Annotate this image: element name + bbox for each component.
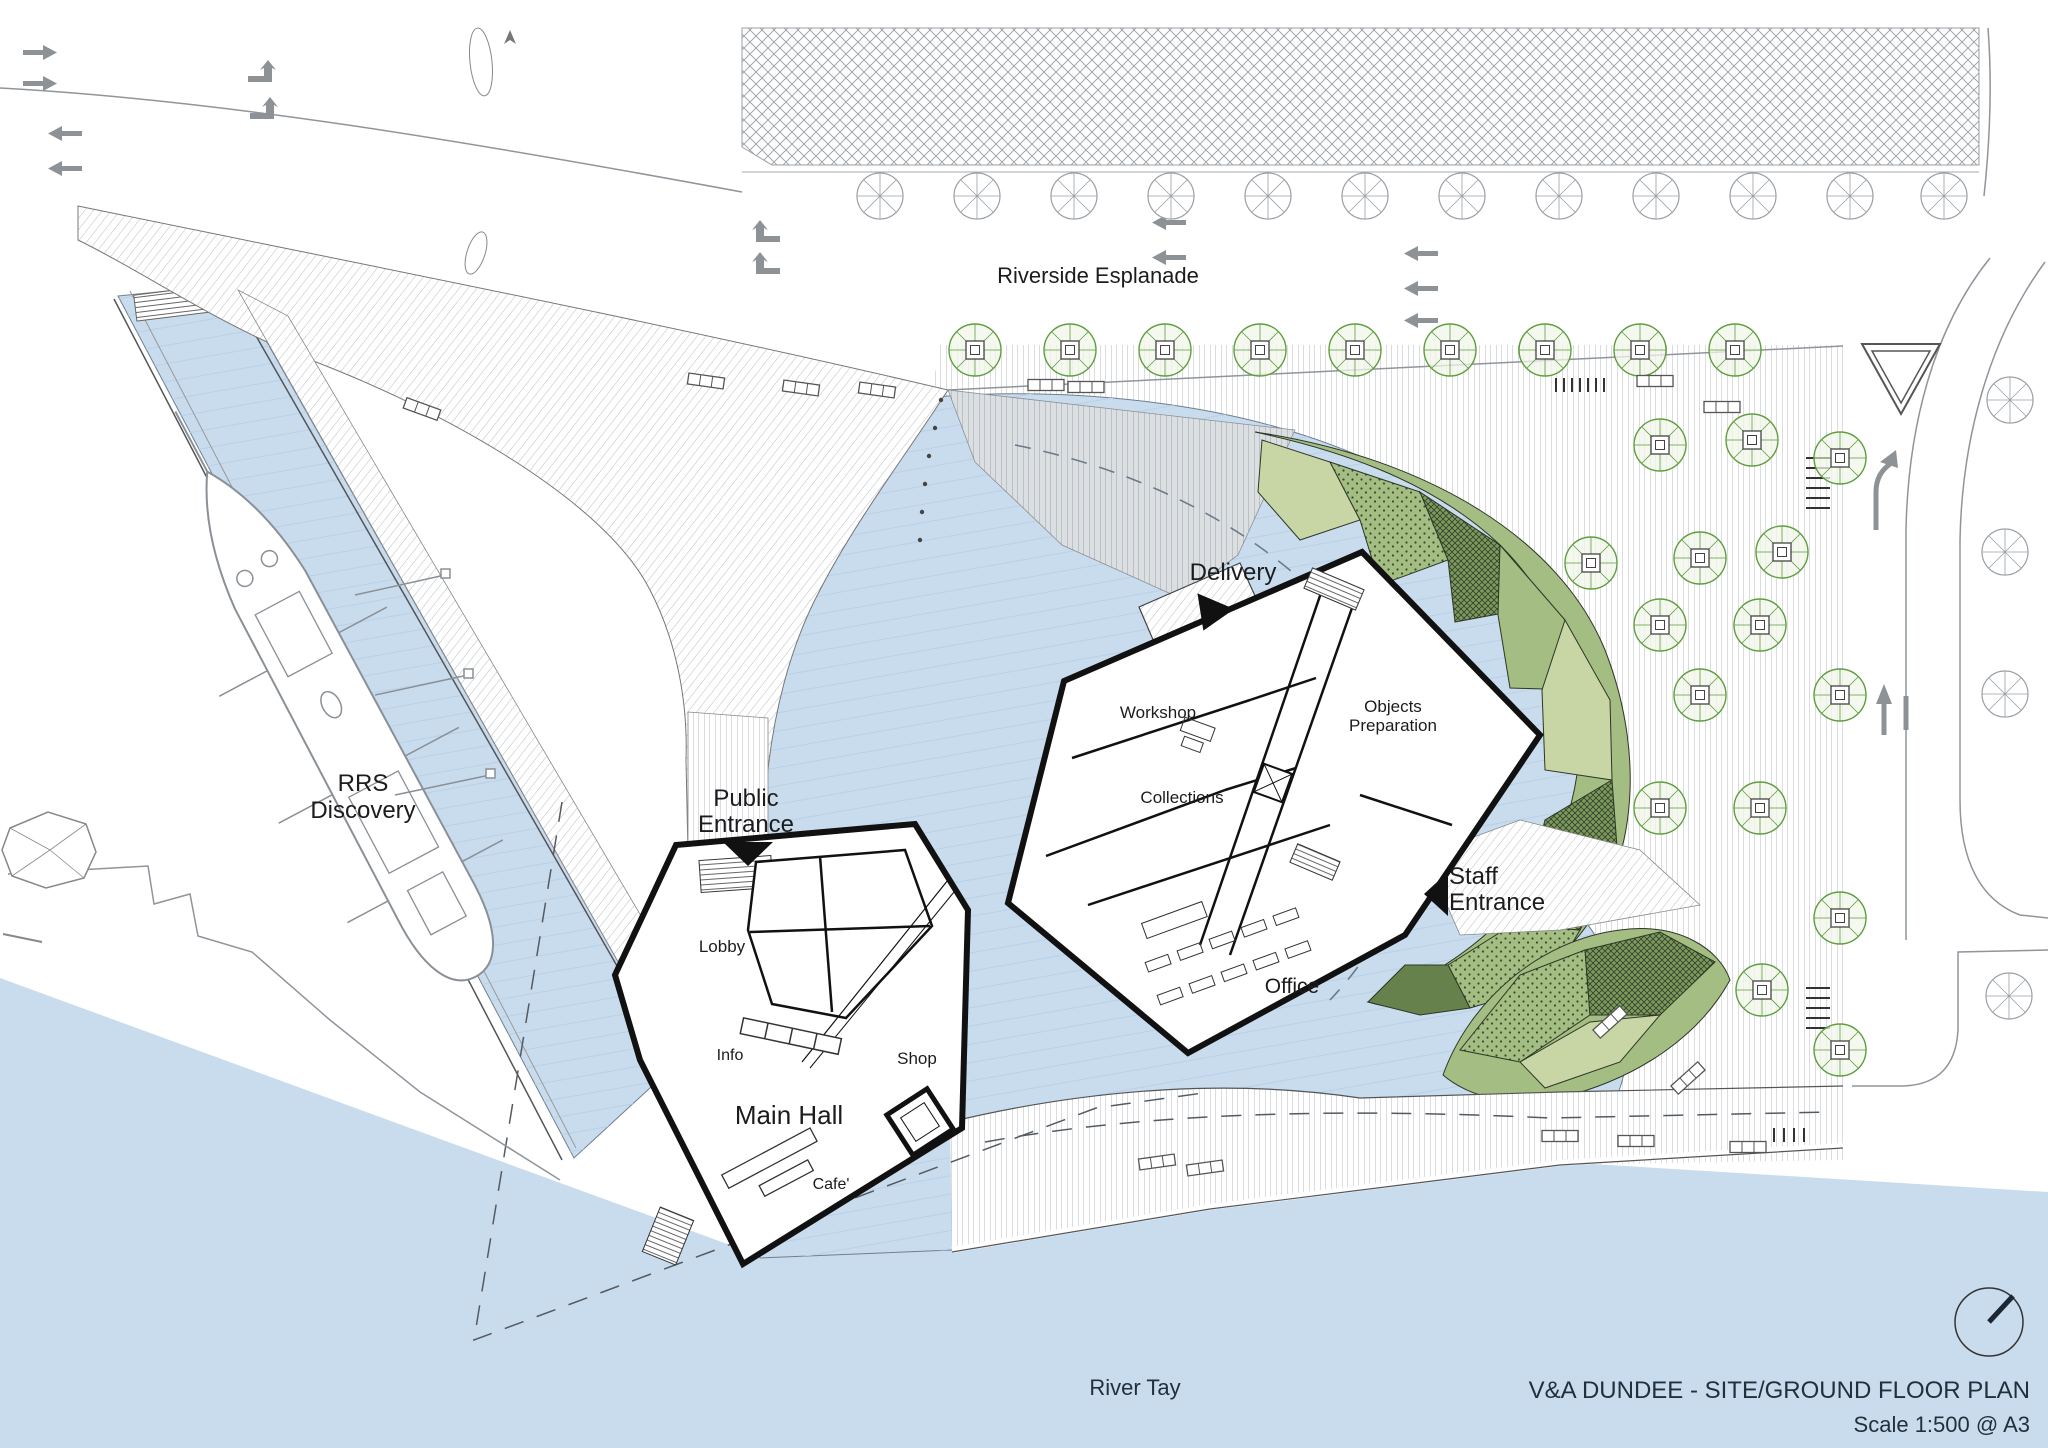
shop-label: Shop	[897, 1049, 937, 1068]
bench-icon	[1704, 402, 1740, 413]
objects-preparation-label-line2: Preparation	[1349, 716, 1437, 735]
tree-gray-icon	[954, 173, 1000, 219]
tree-icon	[1814, 892, 1866, 944]
tree-icon	[1709, 324, 1761, 376]
tree-gray-icon	[1245, 173, 1291, 219]
tree-icon	[949, 324, 1001, 376]
tree-gray-icon	[1827, 173, 1873, 219]
tree-gray-icon	[1051, 173, 1097, 219]
tree-gray-icon	[1921, 173, 1967, 219]
tree-icon	[1814, 432, 1866, 484]
tree-icon	[1139, 324, 1191, 376]
riverside-esplanade-label: Riverside Esplanade	[997, 263, 1199, 288]
tree-icon	[1756, 526, 1808, 578]
tree-icon	[1519, 324, 1571, 376]
collections-label: Collections	[1140, 788, 1223, 807]
tree-icon	[1565, 537, 1617, 589]
river-tay-label: River Tay	[1089, 1375, 1180, 1400]
tree-gray-icon	[1439, 173, 1485, 219]
tree-gray-icon	[1148, 173, 1194, 219]
tree-icon	[1634, 782, 1686, 834]
main-hall-label: Main Hall	[735, 1100, 843, 1130]
tree-gray-icon	[1633, 173, 1679, 219]
bench-icon	[1542, 1131, 1578, 1142]
tree-icon	[1234, 324, 1286, 376]
tree-gray-icon	[857, 173, 903, 219]
bench-icon	[1028, 380, 1064, 391]
site-plan-drawing: Riverside Esplanade RRS Discovery Public…	[0, 0, 2048, 1448]
drawing-scale: Scale 1:500 @ A3	[1854, 1412, 2030, 1437]
tree-icon	[1736, 964, 1788, 1016]
bench-icon	[1618, 1136, 1654, 1147]
railway-block	[742, 28, 1979, 172]
tree-row-road	[949, 324, 1761, 376]
tree-gray-icon	[1986, 973, 2032, 1019]
tree-icon	[1734, 599, 1786, 651]
tree-icon	[1329, 324, 1381, 376]
lobby-label: Lobby	[699, 937, 746, 956]
tree-icon	[1734, 782, 1786, 834]
tree-gray-icon	[1342, 173, 1388, 219]
public-entrance-label-line2: Entrance	[698, 811, 794, 838]
tree-icon	[1614, 324, 1666, 376]
tree-icon	[1674, 669, 1726, 721]
tree-gray-icon	[1536, 173, 1582, 219]
drawing-title: V&A DUNDEE - SITE/GROUND FLOOR PLAN	[1529, 1377, 2030, 1404]
rrs-discovery-label-line2: Discovery	[310, 797, 415, 824]
tree-gray-icon	[1982, 671, 2028, 717]
office-label: Office	[1265, 975, 1319, 998]
bench-icon	[1637, 376, 1673, 387]
staff-entrance-label-line1: Staff	[1449, 863, 1498, 890]
cafe-label: Cafe'	[813, 1176, 850, 1193]
tree-icon	[1814, 669, 1866, 721]
tree-icon	[1634, 599, 1686, 651]
bench-icon	[1068, 382, 1104, 393]
tree-gray-icon	[1987, 377, 2033, 423]
site-plan: Riverside Esplanade RRS Discovery Public…	[0, 0, 2048, 1448]
staff-entrance-label-line2: Entrance	[1449, 889, 1545, 916]
tree-icon	[1424, 324, 1476, 376]
tree-gray-icon	[1730, 173, 1776, 219]
objects-preparation-label-line1: Objects	[1364, 697, 1422, 716]
rrs-discovery-label-line1: RRS	[338, 770, 389, 797]
tree-icon	[1634, 419, 1686, 471]
workshop-label: Workshop	[1120, 703, 1196, 722]
tree-icon	[1726, 414, 1778, 466]
delivery-label: Delivery	[1190, 559, 1277, 586]
bench-icon	[1730, 1142, 1766, 1153]
info-label: Info	[717, 1047, 744, 1064]
public-entrance-label-line1: Public	[713, 785, 778, 812]
tree-icon	[1814, 1024, 1866, 1076]
tree-gray-icon	[1982, 529, 2028, 575]
tree-icon	[1674, 532, 1726, 584]
tree-icon	[1044, 324, 1096, 376]
